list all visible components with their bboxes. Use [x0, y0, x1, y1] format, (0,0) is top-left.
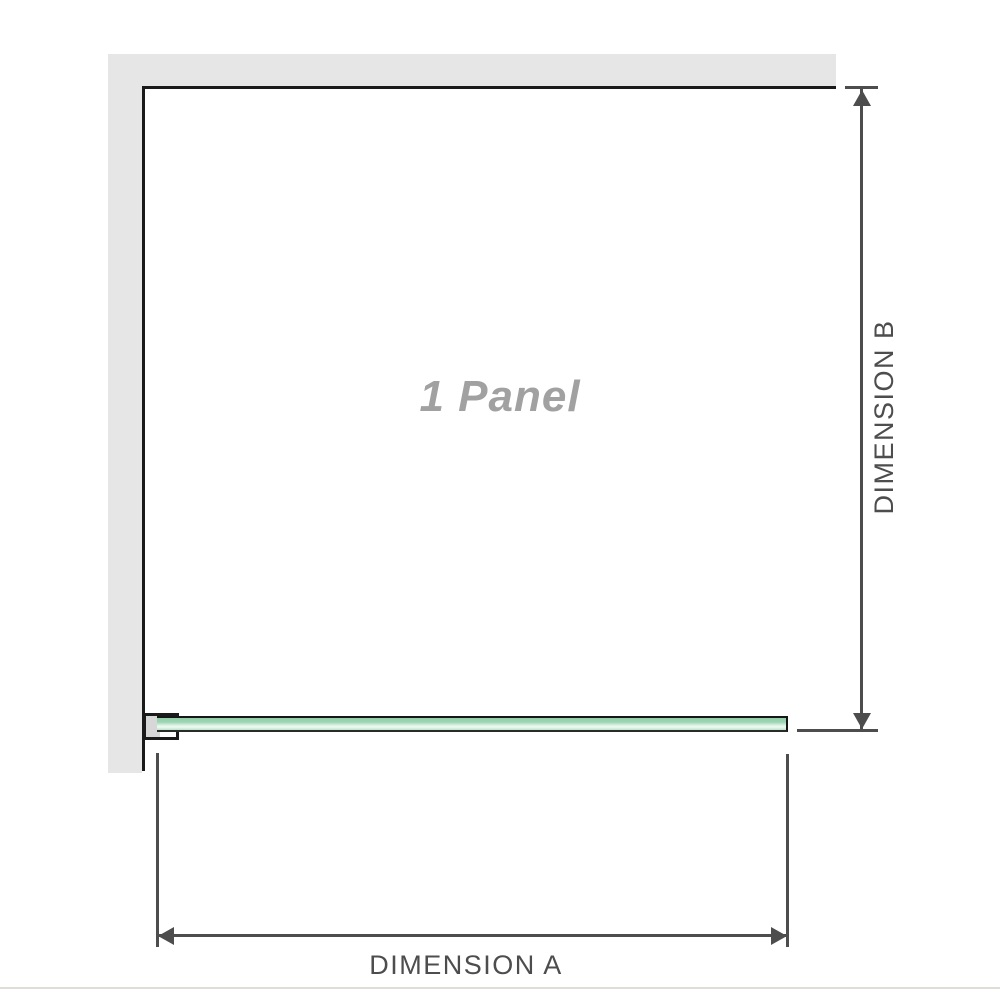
wall-top-band [108, 54, 836, 86]
dimension-a-extension-left [156, 753, 159, 947]
dimension-b-label: DIMENSION B [869, 217, 899, 617]
wall-inner-edge-left-line [142, 86, 145, 771]
dimension-a-label: DIMENSION A [266, 950, 666, 981]
dimension-b-tick-bottom [797, 729, 878, 732]
wall-left-band [108, 54, 142, 773]
dimension-b-arrow-up-icon [853, 90, 871, 106]
dimension-a-arrow-left-icon [158, 927, 174, 945]
wall-inner-edge-top-line [142, 86, 836, 89]
dimension-b-line [860, 88, 863, 730]
dimension-a-extension-right [786, 754, 789, 947]
glass-panel [157, 716, 788, 732]
dimension-a-arrow-right-icon [771, 927, 787, 945]
dimension-a-line [158, 934, 788, 937]
dimension-b-arrow-down-icon [853, 713, 871, 729]
panel-dimension-diagram: 1 Panel DIMENSION B DIMENSION A [0, 0, 1000, 1000]
bottom-divider-line [0, 987, 1000, 989]
panel-count-label: 1 Panel [300, 372, 700, 422]
